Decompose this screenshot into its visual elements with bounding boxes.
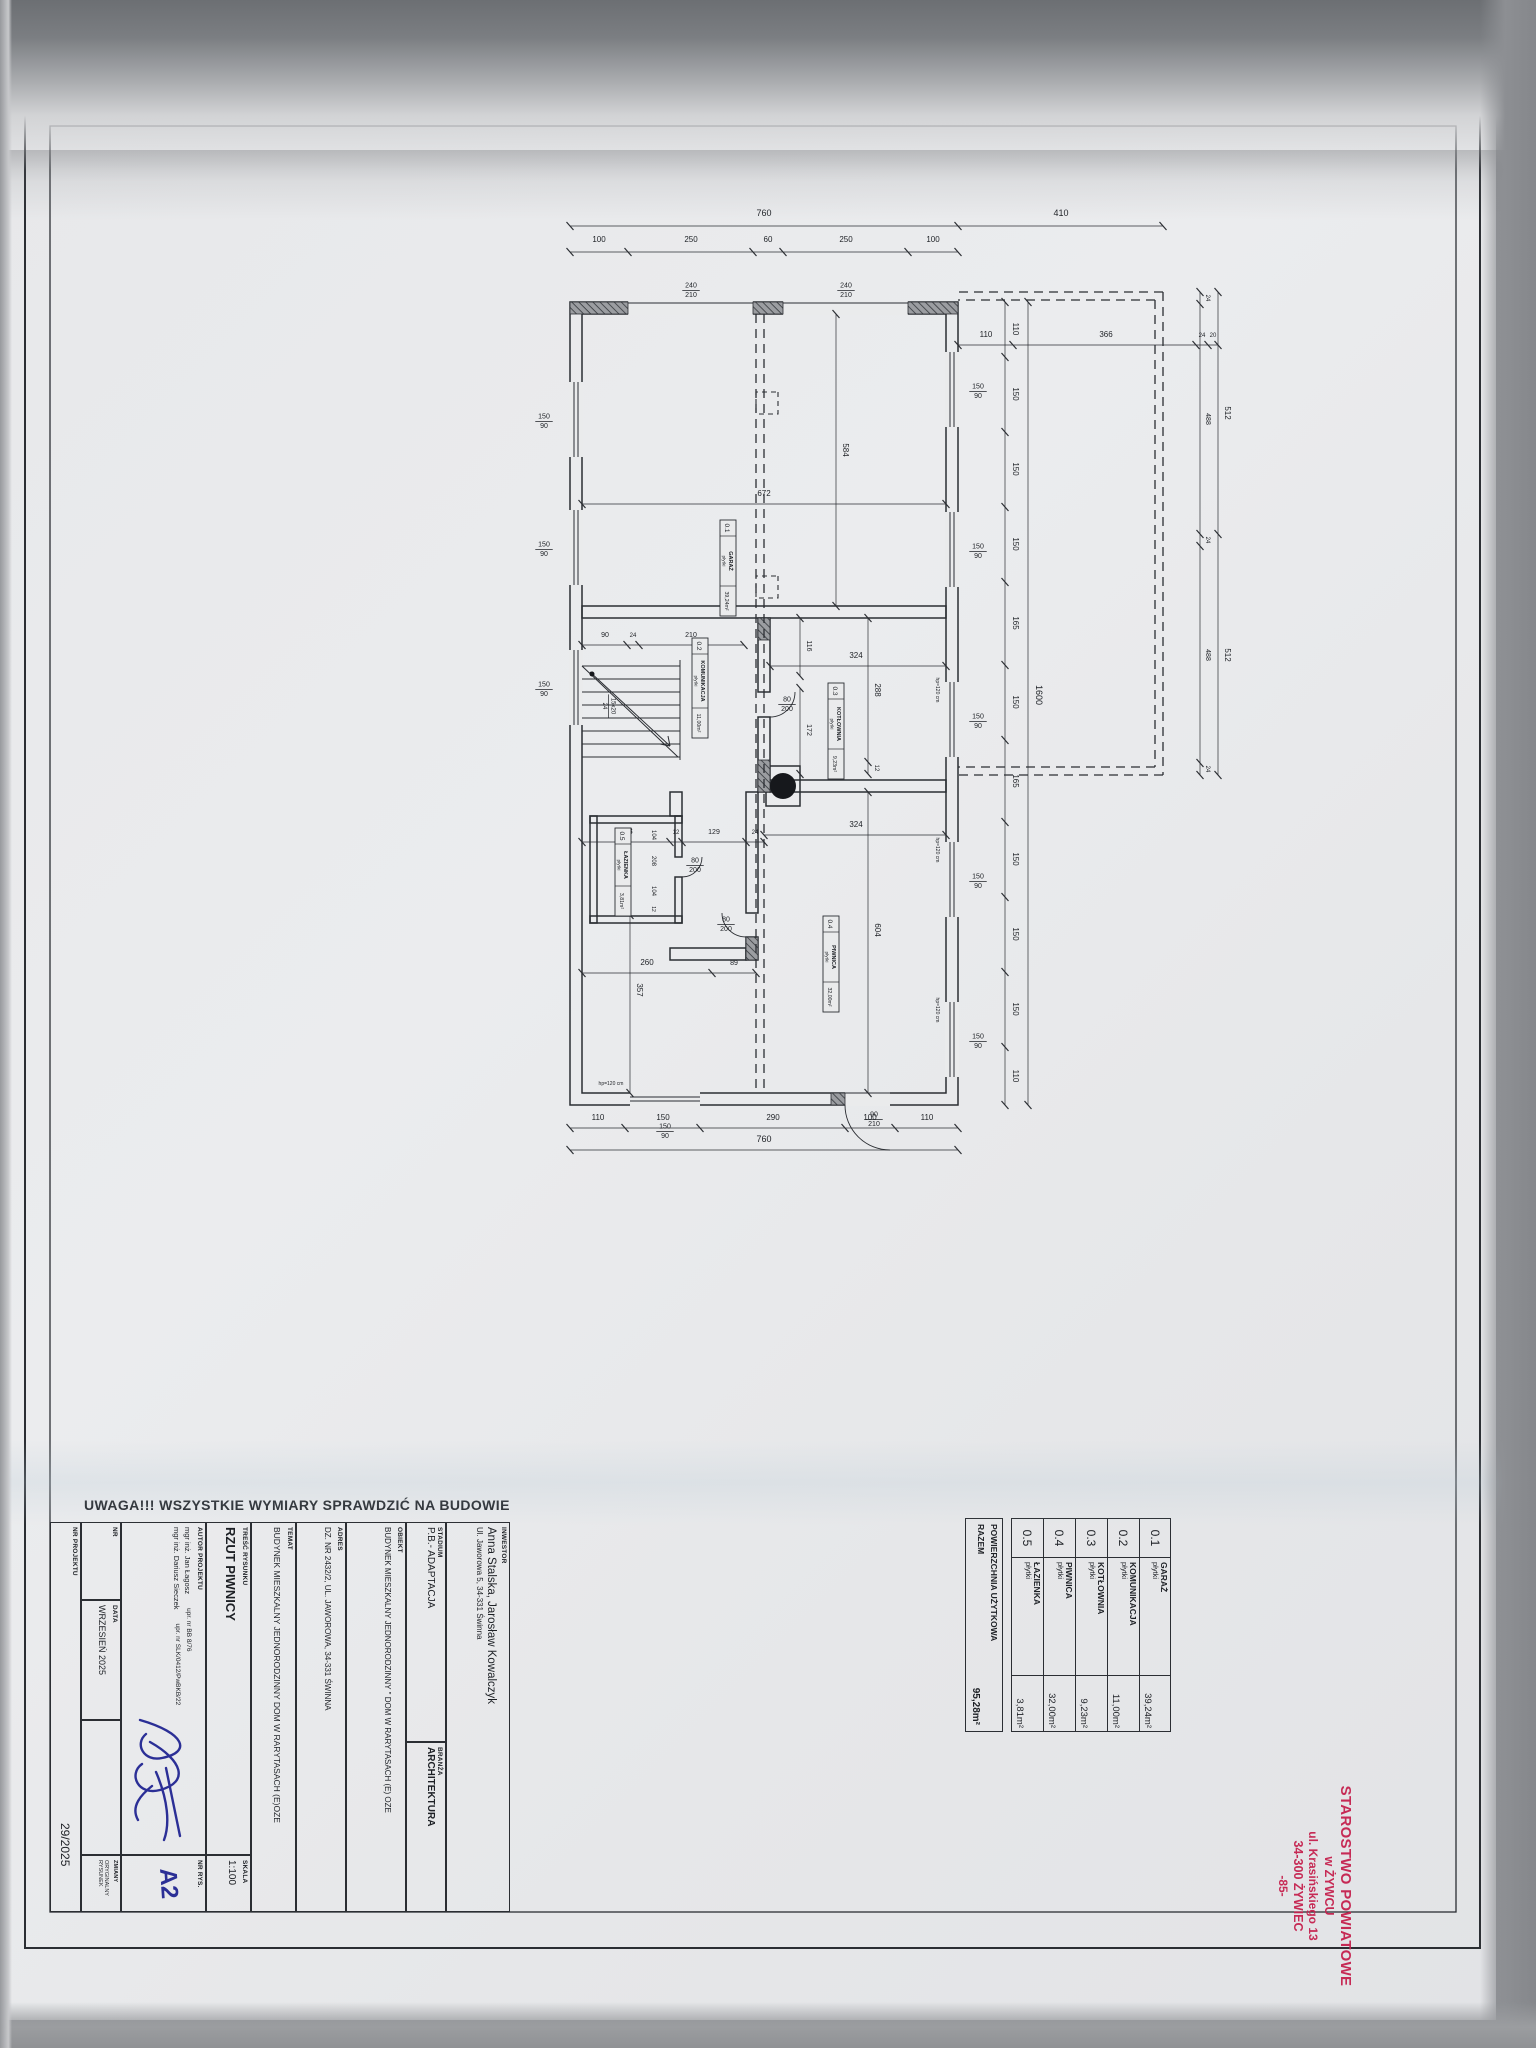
dim-label-group: 250 [839,235,853,244]
dim-label-group: 20 [1210,333,1217,339]
dim-label: 150 [972,384,984,391]
autor-1: mgr inż. Jan Łagosz [183,1527,192,1594]
opening-gap [945,512,959,587]
room-area: 9,23m² [1076,1676,1107,1731]
room-legend-table: 0.1GARAŻpłytki39,24m²0.2KOMUNIKACJApłytk… [965,1518,1171,1732]
dim-label-group: 100 [592,235,606,244]
dim-label-group: 240210 [837,283,854,300]
room-finish: płytki [1120,1562,1128,1671]
legend-total: POWIERZCHNIA UŻYTKOWA RAZEM 95,28m² [965,1518,1003,1732]
room-label-text: GARAŻ [727,551,734,571]
room-finish: płytki [1056,1562,1064,1671]
dim-label: 324 [849,820,863,829]
dim-label-group: 24 [1199,333,1206,339]
dim-label: 210 [685,292,697,299]
dim-label: 116 [805,640,812,651]
dim-label-group: 100 [926,235,940,244]
room-label-text: 39,24m² [723,591,729,610]
dim-label-group: 150 [656,1113,670,1122]
dim-label: 24 [1204,295,1210,302]
legend-row: 0.5ŁAZIENKApłytki3,81m² [1011,1518,1043,1732]
legend-total-label: POWIERZCHNIA UŻYTKOWA [989,1524,999,1726]
dim-label: 357 [635,983,644,997]
dim-label: 110 [921,1113,934,1122]
wall [590,816,597,923]
dim-label-group: 15090 [656,1124,673,1141]
dim-label: hp=120 cm [599,1081,624,1087]
room-label-text: KOTŁOWNIA [835,707,841,741]
room-label-text: 3,81m² [618,893,624,909]
dashed-pillar [756,576,778,598]
boiler-icon [770,773,796,799]
dim-label-group: 165 [1011,774,1020,788]
cell-nrproj: NR PROJEKTU 29/2025 [50,1522,81,1912]
dim-label-group: 366 [1099,330,1113,339]
cell-temat: TEMAT BUDYNEK MIESZKALNY JEDNORODZINNY D… [251,1522,296,1912]
cell-blank [81,1720,121,1855]
cell-skala: SKALA 1:100 [206,1855,251,1912]
wall [675,816,682,857]
dim-label: hp=120 cm [934,678,940,703]
room-label-text: PIWNICA [830,945,836,969]
dim-label: 90 [974,723,982,730]
opening-gap [569,382,583,457]
dim-label-group: 80200 [717,917,734,934]
dim-label-group: 110 [592,1113,605,1122]
note-check-dimensions: UWAGA!!! WSZYSTKIE WYMIARY SPRAWDZIĆ NA … [84,1497,1099,1513]
dim-label: 150 [972,544,984,551]
zmiany-value: ORYGINALNY RYSUNEK [97,1860,109,1907]
room-name: KOMUNIKACJA [1128,1562,1137,1671]
dim-label: 210 [840,292,852,299]
dim-label-group: hp=120 cm [934,678,940,703]
hatched-pillar [753,302,783,314]
skala-value: 1:100 [226,1860,237,1907]
dim-label-group: 15090 [969,1034,986,1051]
dim-label-group: 410 [1053,208,1068,218]
stadium-value: P.B.- ADAPTACJA [425,1527,436,1737]
dim-label: 366 [1099,330,1113,339]
cell-inwestor: INWESTOR Anna Stalska, Jarosław Kowalczy… [446,1522,510,1912]
cell-nr: NR [81,1522,121,1600]
dim-label: 1600 [1034,685,1044,705]
title-block: INWESTOR Anna Stalska, Jarosław Kowalczy… [50,1522,510,1912]
dim-label-group: 15090 [969,544,986,561]
dim-label-group: 760 [756,208,771,218]
dim-label-group: 60 [764,235,773,244]
dim-label-group: 15090 [535,542,552,559]
dim-label: 90 [974,883,982,890]
dim-label: hp=120 cm [934,998,940,1023]
dim-label: 150 [656,1113,670,1122]
dim-label: 200 [720,926,732,933]
dim-label: 104 [650,830,656,841]
cell-tresc: TREŚĆ RYSUNKU RZUT PIWNICY [206,1522,251,1855]
drawing-title: RZUT PIWNICY [223,1527,238,1850]
dim-label: 288 [873,683,882,697]
dim-label-group: 604 [873,923,882,937]
room-name: GARAŻ [1159,1562,1168,1671]
branza-value: ARCHITEKTURA [425,1747,436,1907]
legend-row: 0.4PIWNICApłytki32,00m² [1043,1518,1075,1732]
dim-label-group: 324 [849,651,863,660]
opening-gap [945,682,959,757]
dim-label: 15x20 [610,698,616,715]
dim-label: 150 [538,414,550,421]
rotated-sheet-content: 1101501501501651501651501501501101600100… [0,0,1536,2048]
dim-label-group: 15090 [969,874,986,891]
dim-label-group: 90 [601,632,609,639]
dim-label: 324 [849,651,863,660]
dim-label: 250 [839,235,853,244]
dim-label: 100 [592,235,606,244]
dim-label: 150 [1011,852,1020,866]
room-number: 0.2 [1108,1519,1139,1558]
dim-label-group: 80200 [686,858,703,875]
dim-label-group: 288 [873,683,882,697]
dim-label: 760 [756,1134,771,1144]
room-area: 32,00m² [1044,1676,1075,1731]
hatched-pillar [570,302,628,314]
room-name: ŁAZIENKA [1032,1562,1041,1671]
opening-gap [569,650,583,725]
dim-label: 150 [972,1034,984,1041]
room-label-text: 11,00m² [695,714,701,733]
dim-label: 260 [640,958,654,967]
dim-label: 24 [752,830,759,836]
cell-adres: ADRES DZ. NR 2432/2, UL. JAWOROWA, 34-33… [296,1522,346,1912]
stamp-line-4: 34-300 ŻYWIEC [1291,1752,1305,2020]
dim-label: 150 [1011,387,1020,401]
stamp-line-1: STAROSTWO POWIATOWE [1337,1752,1354,2020]
dim-label: 172 [805,724,812,736]
photo-of-drawing: 1101501501501651501651501501501101600100… [0,0,1536,2048]
room-label-text: 0.2 [695,641,702,650]
dim-label: 90 [974,1043,982,1050]
dim-label-group: 24 [1204,295,1210,302]
dim-label-group: 584 [841,443,850,457]
room-label-text: 32,00m² [826,987,832,1006]
temat-label: TEMAT [286,1527,293,1907]
obiekt-value: BUDYNEK MIESZKALNY JEDNORODZINNY " DOM W… [383,1527,392,1907]
stamp-line-5: -85- [1276,1752,1290,2020]
dim-label: 604 [873,923,882,937]
dim-label: 90 [974,393,982,400]
dim-label: 20 [1210,333,1217,339]
signature-ink [122,1708,200,1858]
dim-label: 110 [980,330,993,339]
dim-label-group: 488 [1204,649,1211,661]
dim-label: 165 [1011,616,1020,630]
opening-gap [945,1002,959,1077]
legend-total-value: 95,28m² [970,1688,981,1725]
dim-label: 90 [974,553,982,560]
room-number: 0.3 [1076,1519,1107,1558]
dim-label: 80 [722,917,730,924]
dim-label-group: 208 [650,856,656,867]
dim-label-group: 110 [921,1113,934,1122]
inwestor-address: Ul. Jaworowa 5, 34-331 Świnna [475,1527,484,1907]
inwestor-label: INWESTOR [500,1527,507,1907]
wall [670,792,682,816]
dim-label: 760 [756,208,771,218]
dim-label-group: 357 [635,983,644,997]
dim-label: 90 [661,1133,669,1140]
opening-gap [945,352,959,427]
dim-label-group: 15090 [969,384,986,401]
zmiany-label: ZMIANY [112,1860,118,1907]
dim-label: 150 [538,682,550,689]
wall [670,948,746,960]
dim-label: 110 [1011,323,1020,336]
room-area: 11,00m² [1108,1676,1139,1731]
dim-label: 150 [1011,927,1020,941]
dim-label-group: 150 [1011,387,1020,401]
room-area: 3,81m² [1012,1676,1043,1731]
dim-label: 24 [1204,537,1210,544]
dim-label: 584 [841,443,850,457]
room-finish: płytki [1088,1562,1096,1671]
nrrys-label: NR RYS. [196,1860,203,1907]
dim-label-group: 150 [1011,852,1020,866]
plan-line [582,666,678,757]
autor-2-upr: upr. nr SLK/0412/PwBKB/22 [172,1624,181,1706]
dim-label-group: 24 [1204,537,1210,544]
autor-1-upr: upr. nr BB 8/76 [183,1608,192,1651]
dim-label: hp=120 cm [934,838,940,863]
dim-label-group: 24 [1204,766,1210,773]
dim-label: 165 [1011,774,1020,788]
nrproj-label: NR PROJEKTU [71,1527,78,1907]
dim-label-group: 15090 [969,714,986,731]
dim-label: 104 [650,886,656,897]
dim-label: 90 [870,1112,878,1119]
legend-rows: 0.1GARAŻpłytki39,24m²0.2KOMUNIKACJApłytk… [1011,1518,1171,1732]
dim-label-group: 15x2024 [601,694,616,717]
room-label-text: ŁAZIENKA [622,851,628,879]
project-number: 29/2025 [58,1823,72,1866]
dim-label: 110 [1011,1070,1020,1083]
dim-label: 110 [592,1113,605,1122]
dim-label: 200 [689,867,701,874]
dim-label: 250 [684,235,698,244]
dim-label-group: 104 [650,886,656,897]
dim-label: 100 [926,235,940,244]
dim-label: 150 [972,714,984,721]
dim-label: 240 [840,283,852,290]
dim-label-group: 1600 [1034,685,1044,705]
branza-label: BRANŻA [436,1747,443,1907]
room-number: 0.4 [1044,1519,1075,1558]
legend-row: 0.3KOTŁOWNIApłytki9,23m² [1075,1518,1107,1732]
dim-label: 24 [630,633,637,639]
dim-label: 150 [538,542,550,549]
stamp-line-3: ul. Krasińskiego 13 [1306,1752,1320,2020]
stadium-label: STADIUM [436,1527,443,1737]
cell-nrrys: NR RYS. A2 [121,1855,206,1912]
dim-label-group: 12 [650,906,656,912]
dim-label: 150 [659,1124,671,1131]
dim-label-group: 150 [1011,1002,1020,1016]
data-label: DATA [111,1605,118,1715]
dim-label: 150 [972,874,984,881]
dim-label-group: 512 [1223,648,1232,662]
cell-data: DATA WRZESIEŃ 2025 [81,1600,121,1720]
boiler-icon [590,672,595,677]
dim-label: 89 [730,960,738,967]
wall [590,816,682,823]
dim-label: 150 [1011,537,1020,551]
stamp-line-2: w ŻYWCU [1322,1752,1336,2020]
temat-value: BUDYNEK MIESZKALNY JEDNORODZINNY DOM W R… [272,1527,282,1907]
dim-label: 512 [1223,648,1232,662]
dim-label-group: 172 [805,724,812,736]
room-label-text: 0.1 [723,523,730,532]
dim-label-group: 150 [1011,462,1020,476]
room-name: PIWNICA [1064,1562,1073,1671]
dim-label-group: 150 [1011,927,1020,941]
dashed-pillar [756,392,778,414]
dim-label-group: 150 [1011,537,1020,551]
dim-label-group: 24 [752,830,759,836]
cell-stadium: STADIUM P.B.- ADAPTACJA [406,1522,446,1742]
dim-label-group: 488 [1204,413,1211,425]
dim-label-group: 240210 [682,283,699,300]
obiekt-label: OBIEKT [396,1527,403,1907]
dim-label-group: 110 [1011,323,1020,336]
dim-label-group: 110 [1011,1070,1020,1083]
legend-row: 0.2KOMUNIKACJApłytki11,00m² [1107,1518,1139,1732]
opening-gap [945,842,959,917]
dim-label-group: 116 [805,640,812,651]
dim-label: 410 [1053,208,1068,218]
room-number: 0.1 [1140,1519,1170,1558]
room-finish: płytki [1024,1562,1032,1671]
sheet-number-ink: A2 [152,1859,183,1908]
room-number: 0.5 [1012,1519,1043,1558]
starostwo-stamp: STAROSTWO POWIATOWE w ŻYWCU ul. Krasińsk… [1276,1752,1354,2020]
dim-label: 150 [1011,462,1020,476]
data-value: WRZESIEŃ 2025 [97,1605,107,1715]
dim-label-group: 290 [766,1113,780,1122]
dim-label: 12 [873,765,879,772]
opening-gap [630,1092,700,1106]
dim-label: 150 [1011,695,1020,709]
dim-label-group: 104 [650,830,656,841]
tresc-label: TREŚĆ RYSUNKU [241,1527,248,1850]
dim-label: 208 [650,856,656,867]
dim-label: 90 [540,691,548,698]
dim-label-group: 250 [684,235,698,244]
dim-label: 90 [540,423,548,430]
dim-label-group: 324 [849,820,863,829]
dim-label: 12 [650,906,656,912]
dim-label-group: 150 [1011,695,1020,709]
dim-label-group: 260 [640,958,654,967]
room-label-text: 9,23m² [831,756,837,772]
skala-label: SKALA [241,1860,248,1907]
dim-label: 672 [757,489,771,498]
cell-obiekt: OBIEKT BUDYNEK MIESZKALNY JEDNORODZINNY … [346,1522,406,1912]
room-label-text: 0.5 [618,831,625,840]
legend-row: 0.1GARAŻpłytki39,24m² [1139,1518,1171,1732]
dim-label-group: 15090 [535,414,552,431]
dim-label-group: 12 [873,765,879,772]
room-area: 39,24m² [1140,1676,1170,1731]
dim-label: 24 [1199,333,1206,339]
dim-label: 488 [1204,649,1211,661]
dim-label: 150 [1011,1002,1020,1016]
adres-value: DZ. NR 2432/2, UL. JAWOROWA, 34-331 ŚWIN… [323,1527,332,1907]
opening-gap [569,510,583,585]
cell-autor: AUTOR PROJEKTU mgr inż. Jan Łagosz upr. … [121,1522,206,1855]
dim-label-group: 129 [708,829,720,836]
dim-label: 129 [708,829,720,836]
dim-label: 290 [766,1113,780,1122]
dim-label: 90 [540,551,548,558]
dim-label-group: hp=120 cm [599,1081,624,1087]
dim-label-group: 165 [1011,616,1020,630]
room-finish: płytki [1151,1562,1159,1671]
dim-label-group: 24 [630,633,637,639]
dim-label: 240 [685,283,697,290]
room-label-text: 0.3 [831,686,838,695]
dim-label-group: 15090 [535,682,552,699]
dim-label: 24 [1204,766,1210,773]
room-label-text: 0.4 [826,919,833,928]
room-label-text: KOMUNIKACJA [699,660,705,701]
inwestor-name: Anna Stalska, Jarosław Kowalczyk [485,1527,497,1907]
opening-gap [845,1092,890,1106]
dim-label: 512 [1223,406,1232,420]
cell-zmiany: ZMIANY ORYGINALNY RYSUNEK [81,1855,121,1912]
hatched-pillar [908,302,958,314]
dim-label: 488 [1204,413,1211,425]
dim-label: 12 [673,830,680,836]
dim-label: 200 [781,706,793,713]
dim-label-group: hp=120 cm [934,838,940,863]
cell-branza: BRANŻA ARCHITEKTURA [406,1742,446,1912]
adres-label: ADRES [336,1527,343,1907]
dim-label-group: 12 [673,830,680,836]
autor-2: mgr inż. Dariusz Sieczek [172,1527,181,1610]
dim-label-group: 80200 [778,697,795,714]
dim-label-group: 110 [980,330,993,339]
dim-label-group: 760 [756,1134,771,1144]
dim-label: 80 [783,697,791,704]
dim-label: 60 [764,235,773,244]
wall [770,780,946,792]
hatched-pillar [831,1093,845,1105]
dim-label-group: 672 [757,489,771,498]
dim-label: 210 [868,1121,880,1128]
dim-label-group: 89 [730,960,738,967]
dim-label-group: 512 [1223,406,1232,420]
room-name: KOTŁOWNIA [1096,1562,1105,1671]
wall [590,916,682,923]
dim-label: 80 [691,858,699,865]
dim-label: 90 [601,632,609,639]
dim-label-group: hp=120 cm [934,998,940,1023]
dim-label: 24 [601,703,607,710]
nr-label: NR [111,1527,118,1595]
